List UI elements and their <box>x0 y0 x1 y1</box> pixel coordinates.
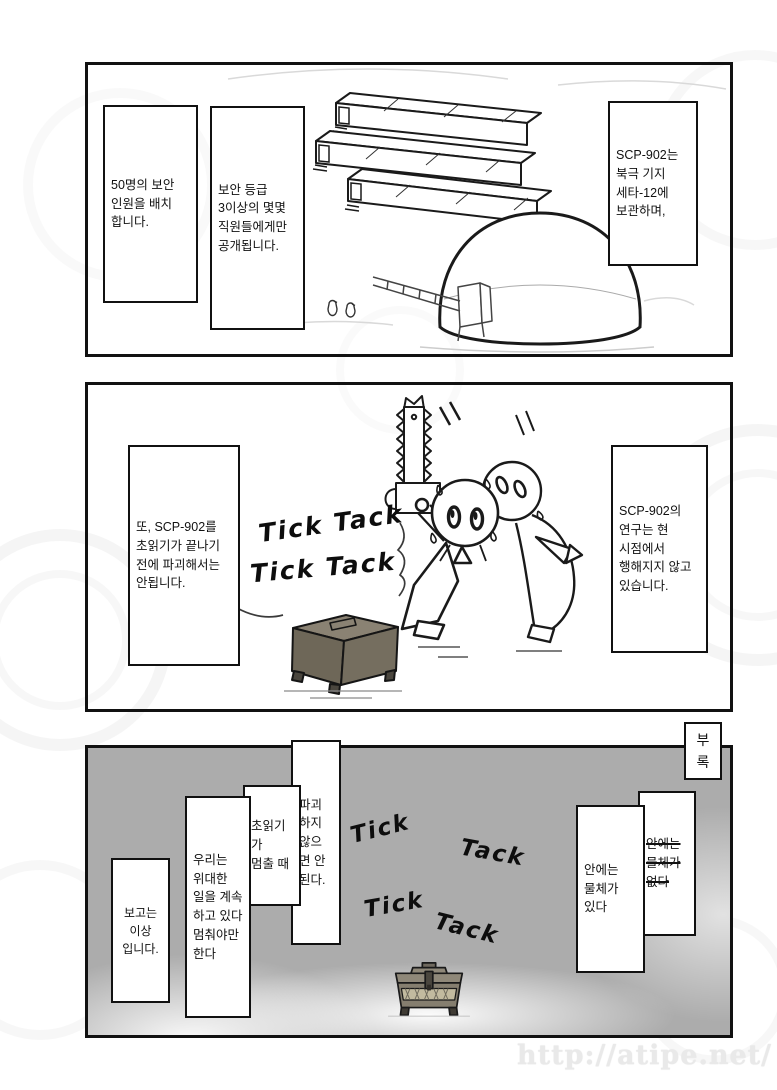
ticking-chest-drawing <box>386 960 472 1019</box>
caption-clearance: 보안 등급 3이상의 몇몇 직원들에게만 공개됩니다. <box>210 106 305 330</box>
ground-motion-dashes <box>418 647 562 657</box>
caption-object-inside: 안에는 물체가 있다 <box>576 805 645 973</box>
sfx-tick-1: Tick <box>348 809 413 849</box>
appendix-tab-label: 부록 <box>695 729 711 774</box>
box-shadow-lines <box>284 691 402 698</box>
panel-top: 50명의 보안 인원을 배치 합니다. 보안 등급 3이상의 몇몇 직원들에게만… <box>85 62 733 357</box>
caption-destruction-rule: 또, SCP-902를 초읽기가 끝나기 전에 파괴해서는 안됩니다. <box>128 445 240 666</box>
researcher-front-figure <box>402 479 498 639</box>
penguin-icon <box>328 301 355 317</box>
caption-great-work: 우리는 위대한 일을 계속 하고 있다 멈춰야만 한다 <box>185 796 251 1018</box>
appendix-tab: 부록 <box>684 722 722 780</box>
panel-middle: Tick Tack Tick Tack 또, SCP-902를 초읽기가 끝나기… <box>85 382 733 712</box>
caption-report-end: 보고는 이상 입니다. <box>111 858 170 1003</box>
chainsaw-icon <box>386 396 441 513</box>
caption-research-status: SCP-902의 연구는 현 시점에서 행해지지 않고 있습니다. <box>611 445 708 653</box>
caption-storage-location: SCP-902는 북극 기지 세타-12에 보관하며, <box>608 101 698 266</box>
comic-page: 50명의 보안 인원을 배치 합니다. 보안 등급 3이상의 몇몇 직원들에게만… <box>0 0 777 1090</box>
sfx-tack-1: Tack <box>458 835 527 872</box>
sfx-tack-2: Tack <box>432 908 502 949</box>
caption-object-missing-struck: 안에는 물체가 없다 <box>638 791 696 936</box>
motion-lines <box>440 402 460 425</box>
researcher-back-figure <box>483 462 582 642</box>
panel-bottom: 보고는 이상 입니다. 우리는 위대한 일을 계속 하고 있다 멈춰야만 한다 … <box>85 745 733 1038</box>
sfx-tick-2: Tick <box>362 887 426 923</box>
motion-lines-2 <box>516 411 534 435</box>
caption-security-personnel: 50명의 보안 인원을 배치 합니다. <box>103 105 198 303</box>
site-url-watermark: http://atipe.net/ <box>517 1040 772 1071</box>
caption-countdown-stops: 초읽기가 멈출 때 <box>243 785 301 906</box>
ticking-box-drawing <box>292 615 398 694</box>
